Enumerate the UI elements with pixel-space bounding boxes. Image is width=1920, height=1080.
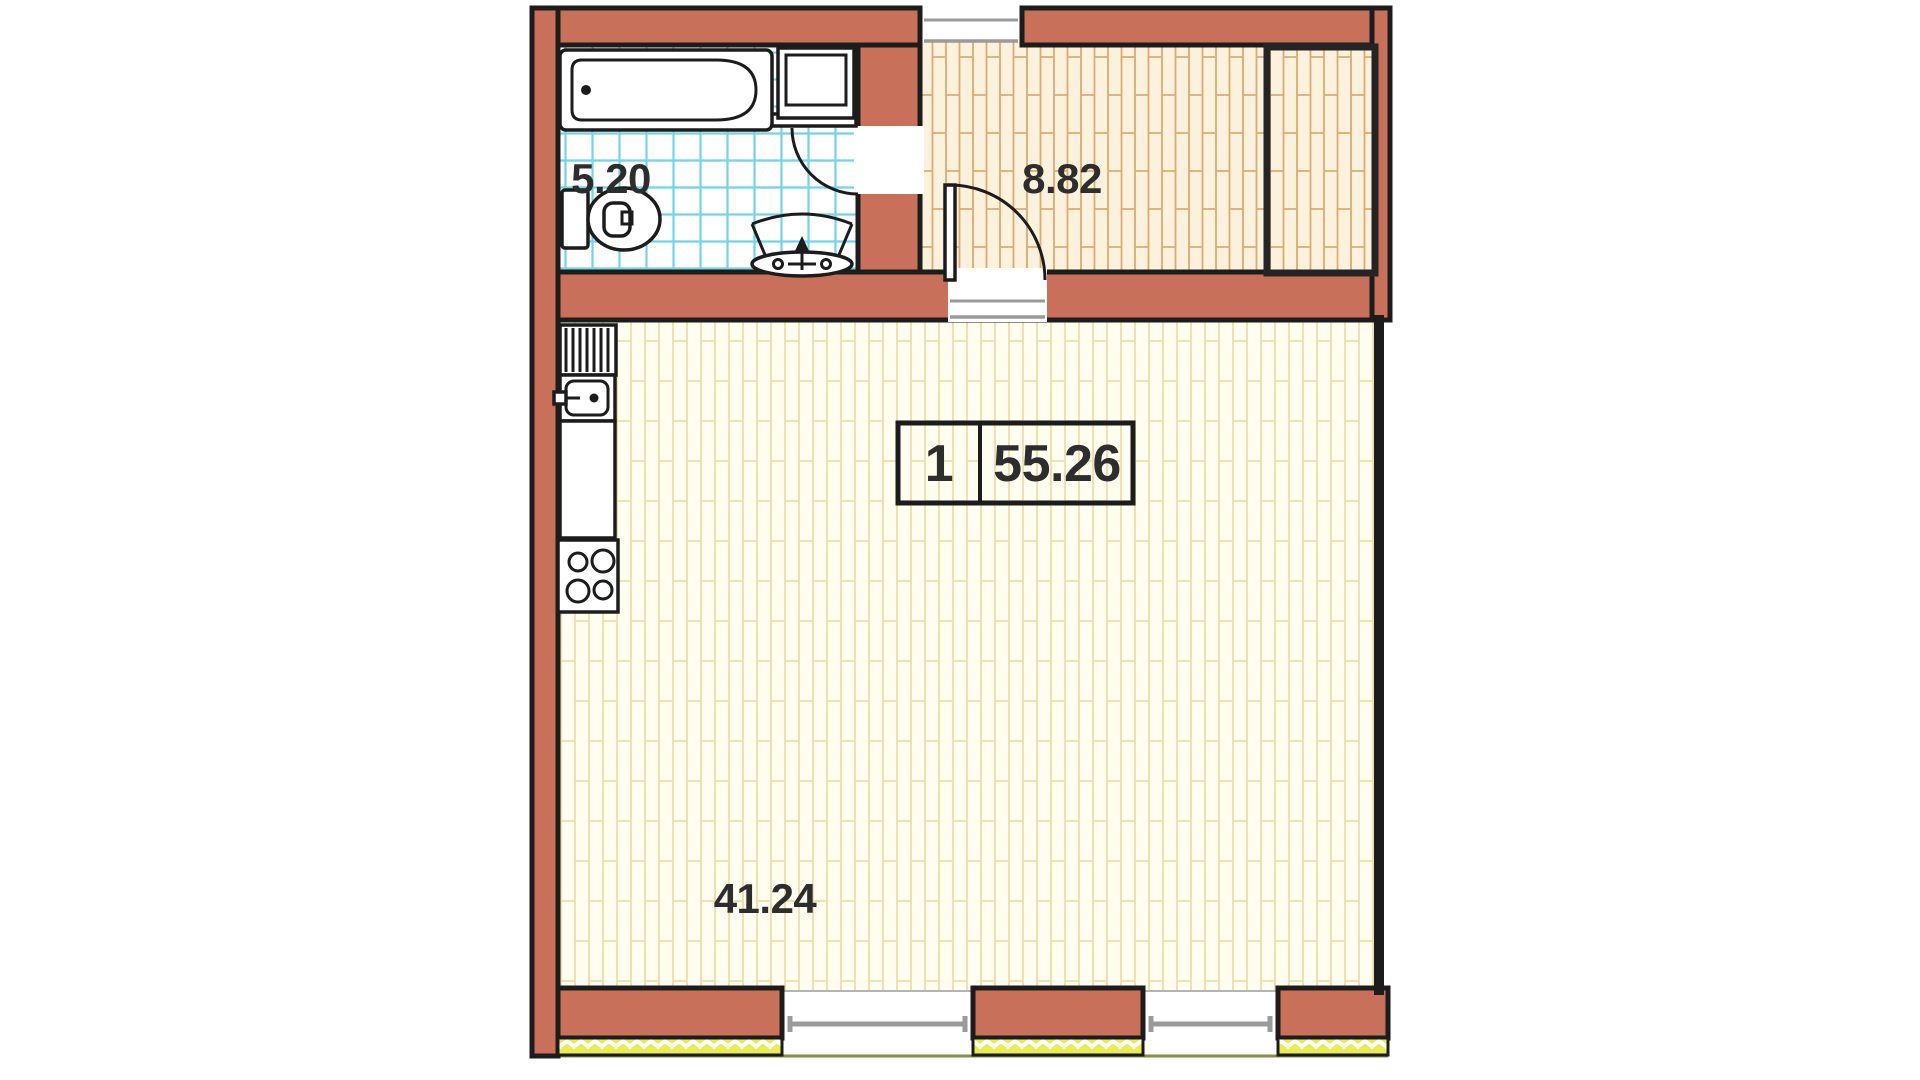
wardrobe-closet bbox=[1267, 47, 1375, 273]
wall-top-right bbox=[1022, 8, 1388, 45]
kitchen-sink-tap bbox=[554, 392, 566, 404]
unit-info-box: 1 55.26 bbox=[898, 423, 1133, 503]
window-sill-right bbox=[1278, 1038, 1388, 1055]
wall-bottom-middle bbox=[973, 988, 1143, 1038]
wall-right-lower bbox=[1374, 315, 1384, 995]
kitchen-sink bbox=[554, 375, 615, 421]
kitchen-sink-drain bbox=[590, 394, 599, 403]
entrance-opening bbox=[924, 20, 1018, 41]
wall-bottom-right bbox=[1278, 988, 1388, 1038]
window-right bbox=[1151, 1016, 1270, 1032]
wall-left bbox=[532, 8, 558, 1056]
window-left bbox=[790, 1016, 965, 1032]
hallway-area-label: 8.82 bbox=[1022, 155, 1102, 202]
living-room-floor bbox=[555, 315, 1380, 992]
window-sill-left bbox=[558, 1038, 782, 1055]
living-room-area-label: 41.24 bbox=[714, 875, 818, 922]
floor-plan-page: 1 55.26 5.20 8.82 41.24 bbox=[0, 0, 1920, 1080]
window-sill-middle bbox=[973, 1038, 1143, 1055]
floor-plan-drawing: 1 55.26 5.20 8.82 41.24 bbox=[0, 0, 1920, 1080]
bathtub-drain bbox=[581, 85, 591, 95]
bathroom-area-label: 5.20 bbox=[571, 155, 651, 202]
bathtub bbox=[560, 50, 772, 130]
shower-cabin bbox=[778, 48, 854, 118]
kitchen-appliance-hatched bbox=[560, 325, 616, 375]
kitchen-counter bbox=[560, 421, 615, 538]
stove-4-burners bbox=[558, 540, 618, 612]
wall-bottom-left bbox=[532, 988, 782, 1038]
wall-top-left bbox=[532, 8, 920, 45]
unit-number: 1 bbox=[925, 435, 953, 493]
unit-total-area: 55.26 bbox=[993, 435, 1121, 493]
hallway-door-leaf bbox=[945, 185, 955, 280]
